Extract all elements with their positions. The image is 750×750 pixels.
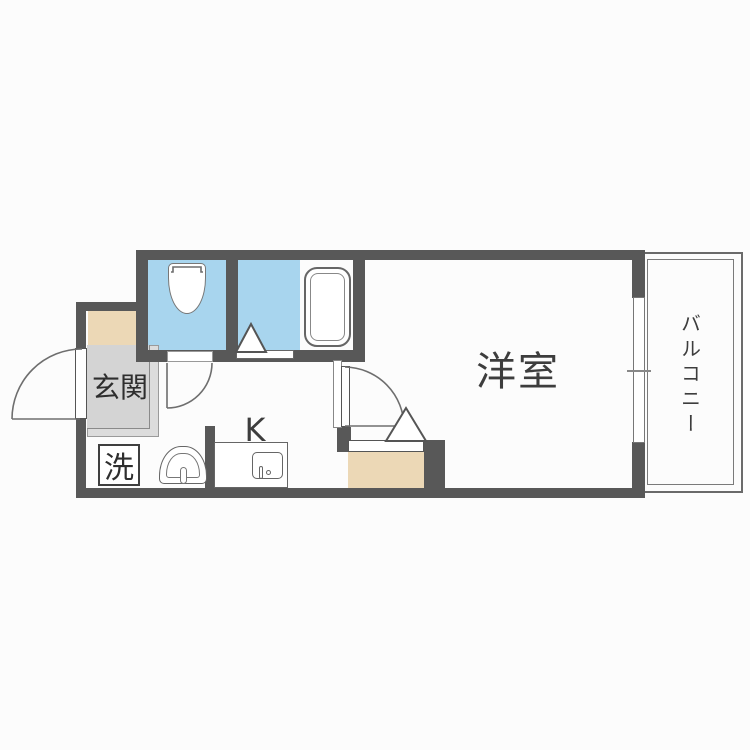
entrance-step (88, 311, 137, 345)
bathtub-inner-rim (310, 273, 345, 341)
sink-drain-dot (266, 470, 271, 475)
entrance-label: 玄関 (86, 371, 154, 401)
washbasin-stem (180, 467, 187, 484)
front-door-arc (12, 349, 82, 419)
room-door-arc (345, 367, 404, 427)
wall-bath-right (353, 258, 365, 360)
bath-door-threshold (236, 350, 294, 359)
wall-right-below-window (632, 442, 645, 498)
laundry-label: 洗 (104, 443, 134, 487)
wall-right-above-window (632, 250, 645, 298)
wall-top (136, 250, 645, 260)
western-room-label: 洋室 (462, 345, 574, 391)
balcony-label: バルコニー (677, 307, 703, 443)
closet-door-panel (348, 440, 424, 452)
wall-toilet-bath-divider (226, 258, 238, 352)
closet-floor (348, 452, 424, 488)
closet-door-triangle (386, 408, 426, 441)
laundry-box: 洗 (98, 444, 140, 486)
kitchen-label: K (239, 412, 271, 448)
toilet-door-arc (167, 363, 212, 408)
floor-plan: 洗 玄関 K 洋室 バルコニー (0, 0, 750, 750)
wall-bottom (76, 488, 645, 498)
sink-faucet (259, 466, 263, 479)
toilet-door-threshold (167, 351, 213, 362)
room-door-leaf (341, 366, 350, 427)
wall-left-upper (76, 302, 86, 350)
window-center-tick (627, 370, 651, 372)
wall-left-lower (76, 417, 86, 498)
bathroom-floor (238, 259, 300, 351)
wall-closet-right-stub (424, 440, 445, 498)
wall-toilet-left (136, 250, 148, 362)
